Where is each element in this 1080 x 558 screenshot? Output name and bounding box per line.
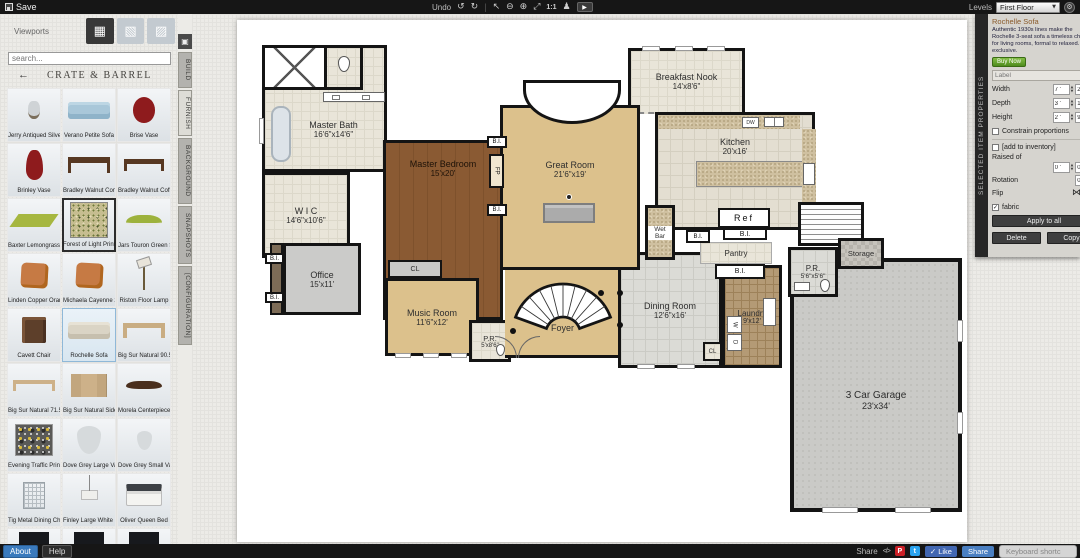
item-label-input[interactable] [992, 70, 1080, 81]
side-tabs: BUILDFURNISHBACKGROUNDSNAPSHOTS[CONFIGUR… [178, 52, 192, 345]
search-row [8, 48, 171, 66]
delete-button[interactable]: Delete [992, 232, 1041, 244]
constrain-checkbox[interactable] [992, 128, 999, 135]
top-toolbar: Save Undo ↺ ↻ | ↖ ⊖ ⊕ ⤢ 1:1 ♟ ▶ Levels F… [0, 0, 1080, 14]
kitchen-sink [764, 117, 784, 127]
copy-button[interactable]: Copy [1047, 232, 1080, 244]
catalog-title: CRATE & BARREL [47, 70, 152, 81]
catalog-item-label: Brise Vase [130, 132, 159, 141]
room-great-room[interactable]: Great Room 21'6"x19' [500, 105, 640, 270]
catalog-item[interactable]: Jerry Antiqued Silve... [7, 88, 61, 142]
catalog-item-label: Riston Floor Lamp [119, 297, 168, 306]
catalog-item[interactable]: Bradley Walnut Coff... [117, 143, 171, 197]
chair-wire-thumb [8, 474, 60, 516]
toilet-icon [338, 56, 350, 72]
garage-door [822, 507, 858, 513]
video-tutorial-button[interactable]: ▶ [577, 2, 593, 12]
room-label: Master Bedroom [410, 159, 477, 169]
catalog-item-label: Evening Traffic Print [8, 462, 60, 471]
pinterest-icon[interactable]: P [895, 546, 905, 556]
utility-sink [763, 298, 776, 326]
level-dropdown-value: First Floor [1000, 3, 1034, 12]
room-dims: 9'x12' [743, 318, 761, 325]
room-dims: 14'6"x10'6" [286, 216, 325, 225]
sidebar-tab-build[interactable]: BUILD [178, 52, 192, 88]
catalog-item-label: Big Sur Natural 71.5... [8, 407, 60, 416]
back-arrow-icon[interactable]: ← [18, 69, 29, 81]
toolbar-divider: | [484, 2, 486, 12]
vase-red-tall-thumb [8, 144, 60, 186]
catalog-item[interactable] [117, 528, 171, 544]
save-icon [5, 3, 13, 11]
catalog-item-label: Dove Grey Large Vase [63, 462, 115, 471]
catalog-item-label: Finley Large White P... [63, 517, 115, 526]
raised-of-row: ▲▼ ▲▼ [992, 162, 1080, 173]
catalog-item[interactable]: Forest of Light Print [62, 198, 116, 252]
shower [265, 48, 327, 90]
depth-row: Depth ▲▼ ▲▼ [992, 98, 1080, 109]
catalog-item[interactable]: Bradley Walnut Con... [62, 143, 116, 197]
zoom-in-icon[interactable]: ⊕ [520, 2, 528, 12]
room-label: Storage [847, 249, 875, 258]
catalog-item[interactable]: Brise Vase [117, 88, 171, 142]
built-in-tag: B.I. [715, 264, 765, 279]
built-in-tag: B.I. [265, 292, 284, 303]
buy-now-button[interactable]: Buy Now [992, 57, 1026, 67]
selected-item-description: Authentic 1930s lines make the Rochelle … [992, 27, 1080, 55]
height-inches-input[interactable] [1075, 112, 1080, 123]
bowl-dark-thumb [118, 364, 170, 406]
room-laundry[interactable]: Laundry 9'x12' W D [722, 265, 782, 368]
catalog-item-label: Jars Touron Green S... [118, 242, 170, 251]
height-label: Height [992, 114, 1051, 121]
room-dims: 11'6"x12' [416, 318, 448, 327]
undo-icon[interactable]: ↺ [457, 2, 465, 12]
catalog-item[interactable]: Tig Metal Dining Ch... [7, 473, 61, 527]
sofa-beige-thumb [63, 309, 115, 351]
catalog-item-label: Rochelle Sofa [70, 352, 107, 361]
catalog-item[interactable]: Morela Centerpiece ... [117, 363, 171, 417]
foyer-closet[interactable]: CL [703, 342, 722, 361]
wet-bar[interactable]: Wet Bar [645, 205, 675, 260]
depth-label: Depth [992, 100, 1051, 107]
bed-queen-thumb [118, 474, 170, 516]
window [707, 46, 725, 51]
chevron-down-icon: ▼ [1052, 4, 1056, 10]
closet-tag: CL [411, 266, 420, 273]
room-dims: 12'6"x16' [654, 311, 686, 320]
sofa-blue-thumb [63, 89, 115, 131]
room-dims: 21'6"x19' [554, 170, 586, 179]
stepper-icon[interactable]: ▲▼ [1071, 164, 1074, 172]
print-forest-thumb [64, 200, 114, 240]
stove [803, 163, 815, 185]
catalog-grid: Jerry Antiqued Silve...Verano Petite Sof… [7, 88, 174, 544]
print-dark-thumb [8, 419, 60, 461]
washer-tag: W [727, 316, 742, 333]
room-label: Master Bath [309, 120, 358, 130]
constrain-label: Constrain proportions [1002, 128, 1069, 135]
sidebar-tab-background[interactable]: BACKGROUND [178, 138, 192, 204]
sidebar-tab-snapshots[interactable]: SNAPSHOTS [178, 206, 192, 265]
built-in-tag: B.I. [723, 228, 767, 240]
vase-grey-large-thumb [63, 419, 115, 461]
refrigerator-tag: Ref [718, 208, 770, 228]
catalog-item[interactable]: Finley Large White P... [62, 473, 116, 527]
catalog-item-label: Brinley Vase [17, 187, 50, 196]
flip-label: Flip [992, 190, 1003, 197]
box-dark-thumb [8, 529, 60, 544]
collapse-panel-button[interactable]: ▣ [178, 34, 192, 49]
stepper-icon[interactable]: ▲▼ [1071, 114, 1074, 122]
box-dark-thumb [118, 529, 170, 544]
catalog-header: ← CRATE & BARREL [0, 66, 178, 84]
catalog-item[interactable]: Baxter Lemongrass ... [7, 198, 61, 252]
room-dims: 20'x16' [723, 147, 748, 156]
room-powder-room-2[interactable]: P.R. 5'6"x5'6" [788, 247, 838, 297]
room-label: Office [310, 270, 333, 280]
viewport-fp-button[interactable]: ▨ [147, 18, 175, 44]
room-label: 3 Car Garage [846, 390, 907, 401]
room-label: Pantry [724, 249, 747, 258]
garage-door [895, 507, 931, 513]
fabric-checkbox[interactable]: ✓ [992, 204, 999, 211]
built-in-tag: B.I. [265, 253, 284, 264]
stepper-icon[interactable]: ▲▼ [1071, 100, 1074, 108]
room-label: Dining Room [644, 301, 696, 311]
catalog-sidebar: Viewports ▦ ▧ ▨ ← CRATE & BARREL Jerry A… [0, 14, 178, 544]
room-master-bath[interactable]: Master Bath 16'6"x14'6" [262, 45, 387, 172]
level-settings-gear-icon[interactable]: ⚙ [1064, 2, 1075, 13]
catalog-item[interactable]: Verano Petite Sofa [62, 88, 116, 142]
keyboard-shortcuts-button[interactable]: Keyboard shortc [999, 545, 1077, 558]
pillow-orange-thumb [63, 254, 115, 296]
column [617, 322, 623, 328]
room-label: W I C [295, 206, 318, 216]
room-dims: 15'x20' [431, 169, 456, 178]
catalog-item[interactable]: Cavett Chair [7, 308, 61, 362]
save-label: Save [16, 2, 37, 12]
height-row: Height ▲▼ ▲▼ [992, 112, 1080, 123]
rotation-label: Rotation [992, 177, 1018, 184]
share-button[interactable]: Share [962, 546, 994, 557]
add-inventory-label: [add to inventory] [1002, 144, 1056, 151]
room-storage[interactable]: Storage [838, 238, 884, 269]
room-dims: 23'x34' [862, 401, 890, 411]
properties-panel: SELECTED ITEM PROPERTIES Rochelle Sofa A… [975, 14, 1080, 257]
window [675, 46, 693, 51]
catalog-item-label: Tig Metal Dining Ch... [8, 517, 60, 526]
catalog-item-label: Cavett Chair [17, 352, 50, 361]
built-in-tag: B.I. [686, 230, 710, 243]
catalog-item-label: Big Sur Natural 90.5... [118, 352, 170, 361]
catalog-item-label: Michaela Cayenne 2... [63, 297, 115, 306]
about-button[interactable]: About [3, 545, 38, 558]
rotation-input[interactable] [1075, 175, 1080, 186]
column [510, 328, 516, 334]
room-label: Great Room [545, 160, 594, 170]
column [598, 290, 604, 296]
catalog-item[interactable]: Linden Copper Oran... [7, 253, 61, 307]
height-feet-input[interactable] [1053, 112, 1070, 123]
viewports-label: Viewports [14, 27, 86, 36]
catalog-item-label: Morela Centerpiece ... [118, 407, 170, 416]
dishwasher-tag: DW [742, 117, 759, 128]
built-in-tag: B.I. [487, 204, 507, 216]
closet-tag: CL [709, 349, 717, 355]
width-row: Width ▲▼ ▲▼ [992, 84, 1080, 95]
console-walnut-thumb [63, 144, 115, 186]
chair-brown-thumb [8, 309, 60, 351]
lamp-floor-thumb [118, 254, 170, 296]
window [451, 353, 467, 358]
facebook-like-button[interactable]: ✓ Like [925, 546, 957, 557]
catalog-item[interactable]: Big Sur Natural 90.5... [117, 308, 171, 362]
sidebar-tab-furnish[interactable]: FURNISH [178, 90, 192, 136]
catalog-item-label: Jerry Antiqued Silve... [8, 132, 60, 141]
catalog-item-label: Dove Grey Small Vase [118, 462, 170, 471]
window [395, 353, 411, 358]
room-label: Breakfast Nook [656, 72, 718, 82]
room-dims: 15'x11' [310, 280, 334, 289]
depth-feet-input[interactable] [1053, 98, 1070, 109]
room-dims: 14'x8'6" [673, 82, 701, 91]
window [423, 353, 439, 358]
undo-label: Undo [432, 3, 451, 12]
properties-panel-title: SELECTED ITEM PROPERTIES [975, 14, 988, 257]
select-cursor-icon[interactable]: ↖ [493, 2, 501, 12]
canvas-tools: Undo ↺ ↻ | ↖ ⊖ ⊕ ⤢ 1:1 ♟ ▶ [432, 0, 593, 14]
bottom-bar: About Help Share </> P t ✓ Like Share Ke… [0, 544, 1080, 558]
sidebar-tabstrip: ▣ BUILDFURNISHBACKGROUNDSNAPSHOTS[CONFIG… [178, 14, 192, 544]
width-inches-input[interactable] [1075, 84, 1080, 95]
room-label: P.R. [806, 264, 821, 273]
music-room-closet[interactable]: CL [388, 260, 442, 278]
catalog-item-label: Baxter Lemongrass ... [8, 242, 60, 251]
window [259, 118, 264, 144]
catalog-item[interactable] [7, 528, 61, 544]
levels-control: Levels First Floor ▼ ⚙ [969, 0, 1075, 14]
dryer-tag: D [727, 334, 742, 351]
catalog-item-label: Bradley Walnut Coff... [118, 187, 170, 196]
table-wood-thumb [118, 309, 170, 351]
room-pantry[interactable]: Pantry [700, 242, 772, 264]
pitcher-silver-thumb [8, 89, 60, 131]
window [677, 364, 695, 369]
save-button[interactable]: Save [5, 2, 37, 12]
share-label: Share [856, 547, 877, 556]
bathtub [271, 106, 291, 162]
room-label: Kitchen [720, 137, 750, 147]
room-office[interactable]: Office 15'x11' [283, 243, 361, 315]
design-canvas[interactable]: Master Bath 16'6"x14'6" W I C 14'6"x10'6… [192, 14, 1080, 544]
catalog-item[interactable]: Big Sur Natural Side... [62, 363, 116, 417]
raised-of-label: Raised of [992, 154, 1080, 161]
window [957, 320, 963, 342]
bowl-green-thumb [118, 199, 170, 241]
search-input[interactable] [8, 52, 171, 65]
catalog-item-label: Forest of Light Print [63, 241, 115, 250]
coffee-walnut-thumb [118, 144, 170, 186]
viewport-3d-button[interactable]: ▧ [117, 18, 145, 44]
catalog-item[interactable]: Dove Grey Large Vase [62, 418, 116, 472]
catalog-item[interactable]: Big Sur Natural 71.5... [7, 363, 61, 417]
built-in-tag: B.I. [487, 136, 507, 148]
add-inventory-checkbox[interactable] [992, 144, 999, 151]
catalog-item[interactable]: Dove Grey Small Vase [117, 418, 171, 472]
viewport-2d-button[interactable]: ▦ [86, 18, 114, 44]
catalog-item[interactable]: Brinley Vase [7, 143, 61, 197]
floor-plan-page[interactable]: Master Bath 16'6"x14'6" W I C 14'6"x10'6… [237, 20, 967, 542]
viewports-row: Viewports ▦ ▧ ▨ [0, 17, 178, 45]
column [617, 290, 623, 296]
catalog-item[interactable] [62, 528, 116, 544]
bench-wood-thumb [8, 364, 60, 406]
walkthrough-icon[interactable]: ♟ [563, 2, 571, 12]
levels-label: Levels [969, 3, 992, 12]
catalog-item-label: Oliver Queen Bed [120, 517, 168, 526]
selection-handle[interactable] [566, 194, 572, 200]
window [637, 364, 655, 369]
room-dims: 16'6"x14'6" [309, 130, 358, 139]
vase-grey-small-thumb [118, 419, 170, 461]
pillow-orange-thumb [8, 254, 60, 296]
redo-icon[interactable]: ↻ [471, 2, 479, 12]
catalog-item[interactable]: Evening Traffic Print [7, 418, 61, 472]
sidebar-tab-configuration[interactable]: [CONFIGURATION] [178, 266, 192, 345]
catalog-item[interactable]: Michaela Cayenne 2... [62, 253, 116, 307]
twitter-icon[interactable]: t [910, 546, 920, 556]
catalog-item-label: Linden Copper Oran... [8, 297, 60, 306]
fireplace-tag: FP [489, 154, 504, 188]
selected-item-title: Rochelle Sofa [992, 17, 1080, 26]
room-label: Wet Bar [648, 226, 672, 240]
flip-horizontal-icon[interactable]: ⋈ [1072, 188, 1080, 198]
grand-staircase [503, 252, 623, 340]
catalog-item-label: Big Sur Natural Side... [63, 407, 115, 416]
depth-inches-input[interactable] [1075, 98, 1080, 109]
width-feet-input[interactable] [1053, 84, 1070, 95]
embed-code-icon[interactable]: </> [883, 548, 890, 555]
vanity-counter [323, 92, 385, 102]
kitchen-island [696, 161, 814, 187]
room-breakfast-nook[interactable]: Breakfast Nook 14'x8'6" [628, 48, 745, 114]
box-dark-thumb [63, 529, 115, 544]
catalog-item[interactable]: Riston Floor Lamp [117, 253, 171, 307]
level-dropdown[interactable]: First Floor ▼ [996, 2, 1060, 13]
catalog-item[interactable]: Rochelle Sofa [62, 308, 116, 362]
sink-icon [794, 282, 810, 291]
window [642, 46, 660, 51]
raised-inches-input[interactable] [1075, 162, 1080, 173]
room-label: Music Room [407, 308, 457, 318]
vase-red-round-thumb [118, 89, 170, 131]
window [957, 412, 963, 434]
help-button[interactable]: Help [42, 545, 72, 558]
catalog-item[interactable]: Oliver Queen Bed [117, 473, 171, 527]
zoom-out-icon[interactable]: ⊖ [506, 2, 514, 12]
pendant-white-thumb [63, 474, 115, 516]
app-window: Save Undo ↺ ↻ | ↖ ⊖ ⊕ ⤢ 1:1 ♟ ▶ Levels F… [0, 0, 1080, 558]
catalog-item[interactable]: Jars Touron Green S... [117, 198, 171, 252]
fabric-label: fabric [1002, 204, 1019, 211]
rug-green-thumb [8, 199, 60, 241]
catalog-item-label: Bradley Walnut Con... [63, 187, 115, 196]
zoom-1-1-icon[interactable]: 1:1 [546, 4, 556, 11]
apply-to-all-button[interactable]: Apply to all [992, 215, 1080, 227]
zoom-extents-icon[interactable]: ⤢ [533, 2, 540, 12]
placed-rochelle-sofa[interactable] [543, 203, 595, 223]
toilet-icon [820, 279, 830, 292]
catalog-item-label: Verano Petite Sofa [64, 132, 114, 141]
raised-feet-input[interactable] [1053, 162, 1070, 173]
room-music-room[interactable]: Music Room 11'6"x12' [385, 278, 479, 356]
toilet-room [327, 48, 363, 90]
sideboard-wood-thumb [63, 364, 115, 406]
stepper-icon[interactable]: ▲▼ [1071, 86, 1074, 94]
width-label: Width [992, 86, 1051, 93]
